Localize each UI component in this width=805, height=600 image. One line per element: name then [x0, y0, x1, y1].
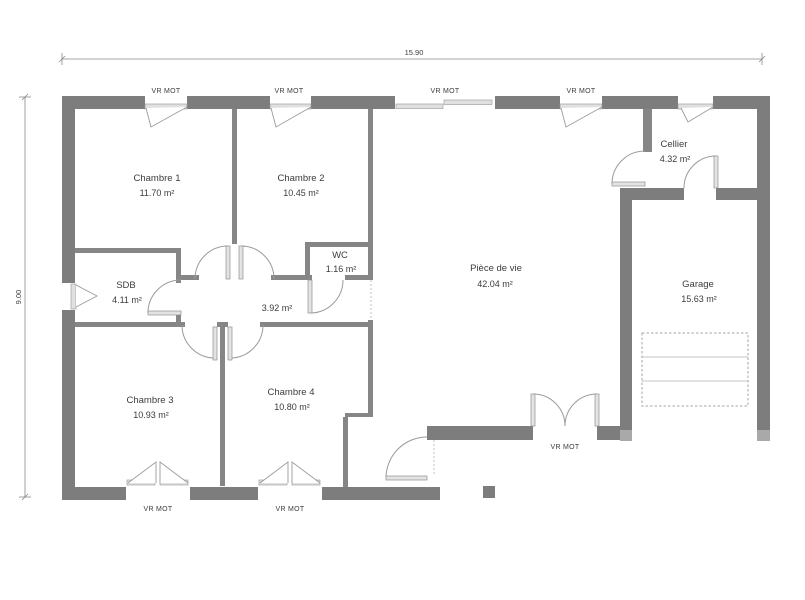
window-chambre3 — [127, 462, 188, 485]
window-chambre4 — [259, 462, 320, 485]
sdb-area: 4.11 m² — [112, 295, 142, 305]
chambre1-name: Chambre 1 — [134, 173, 181, 184]
height-dimension-label: 9.00 — [14, 290, 23, 305]
hallway-area: 3.92 m² — [262, 303, 293, 313]
chambre4-area: 10.80 m² — [274, 402, 310, 412]
chambre1-door — [195, 246, 230, 279]
chambre2-name: Chambre 2 — [278, 173, 325, 184]
vr-mot-label-porch: VR MOT — [550, 444, 579, 451]
wall-openings — [371, 280, 434, 476]
cellier-name: Cellier — [661, 139, 688, 150]
left-dimension: 9.00 — [14, 94, 31, 500]
piece-de-vie-name: Pièce de vie — [470, 263, 522, 274]
wc-area: 1.16 m² — [326, 264, 357, 274]
garage-sectional-door — [642, 333, 748, 406]
piece-de-vie-area: 42.04 m² — [477, 279, 513, 289]
wc-door — [308, 280, 343, 313]
french-double-door — [531, 394, 599, 426]
chambre1-area: 11.70 m² — [140, 188, 175, 198]
vr-mot-label-top-2: VR MOT — [274, 88, 303, 95]
top-dimension: 15.90 — [59, 48, 765, 65]
window-sdb — [71, 284, 97, 309]
chambre4-name: Chambre 4 — [268, 387, 315, 398]
window-cellier — [678, 104, 713, 122]
chambre3-door — [182, 325, 217, 360]
vr-mot-label-top-3: VR MOT — [430, 88, 459, 95]
chambre3-name: Chambre 3 — [127, 395, 174, 406]
vr-mot-label-top-1: VR MOT — [151, 88, 180, 95]
vr-mot-label-top-4: VR MOT — [566, 88, 595, 95]
window-chambre2 — [270, 104, 311, 127]
chambre4-door — [228, 325, 263, 360]
cellier-area: 4.32 m² — [660, 154, 691, 164]
floor-plan-canvas: 15.90 9.00 — [0, 0, 805, 600]
window-piece-de-vie — [560, 104, 602, 127]
chambre3-area: 10.93 m² — [133, 410, 169, 420]
wc-name: WC — [332, 250, 348, 261]
sdb-door — [148, 280, 181, 315]
chambre2-door — [239, 246, 274, 279]
floor-plan-page: 15.90 9.00 — [0, 0, 805, 600]
garage-area: 15.63 m² — [681, 294, 717, 304]
cellier-door — [612, 151, 645, 186]
chambre2-area: 10.45 m² — [283, 188, 319, 198]
window-chambre1 — [145, 104, 187, 127]
vr-mot-label-bottom-1: VR MOT — [143, 506, 172, 513]
interior-walls — [75, 109, 652, 487]
porch-post — [483, 486, 495, 498]
sliding-bay-window — [396, 100, 492, 109]
entry-door — [386, 437, 427, 480]
vr-mot-label-bottom-2: VR MOT — [275, 506, 304, 513]
width-dimension-label: 15.90 — [405, 48, 424, 57]
garage-name: Garage — [682, 279, 714, 290]
sdb-name: SDB — [116, 280, 136, 291]
